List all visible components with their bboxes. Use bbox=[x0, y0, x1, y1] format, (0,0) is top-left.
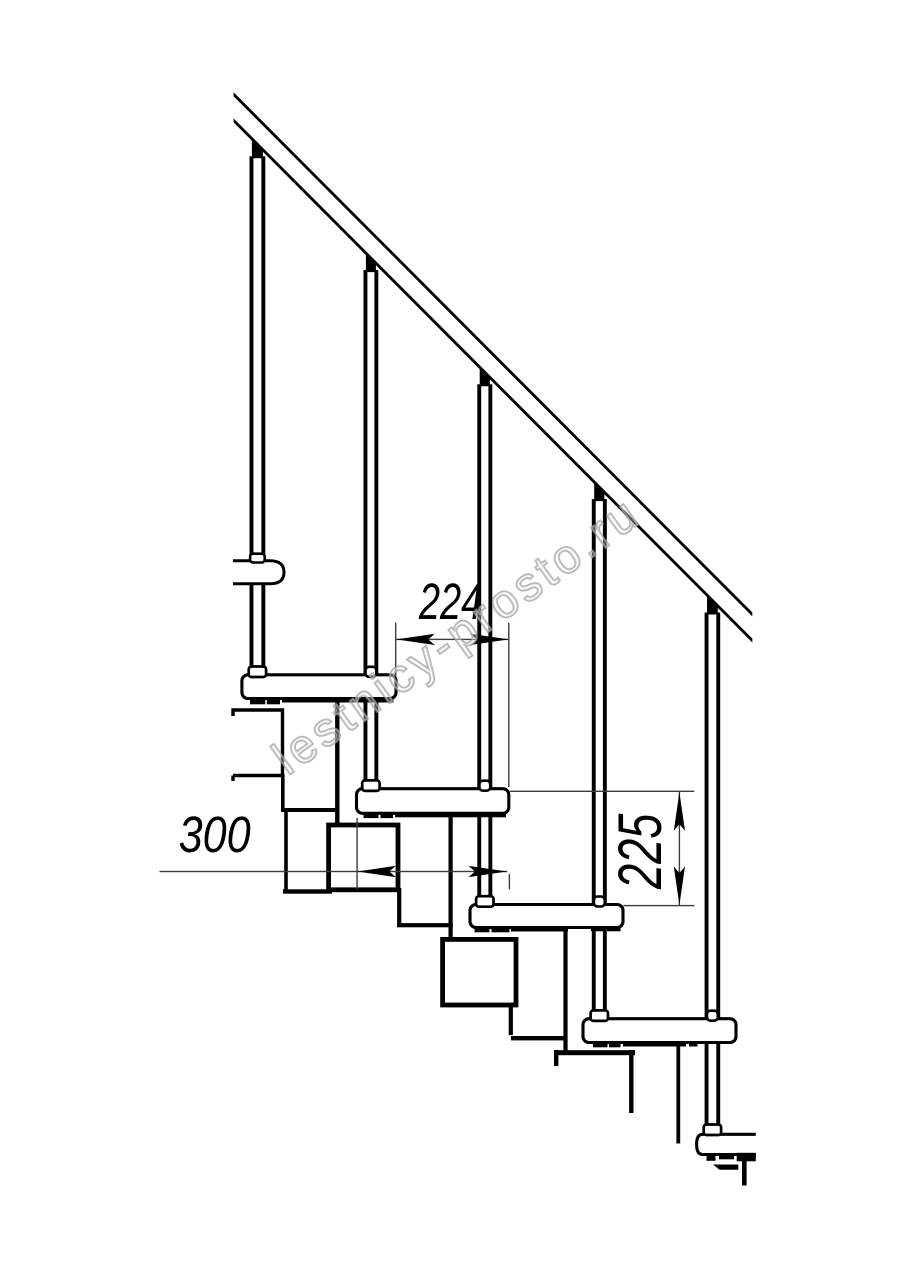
svg-text:225: 225 bbox=[606, 814, 674, 890]
svg-text:300: 300 bbox=[179, 806, 251, 863]
